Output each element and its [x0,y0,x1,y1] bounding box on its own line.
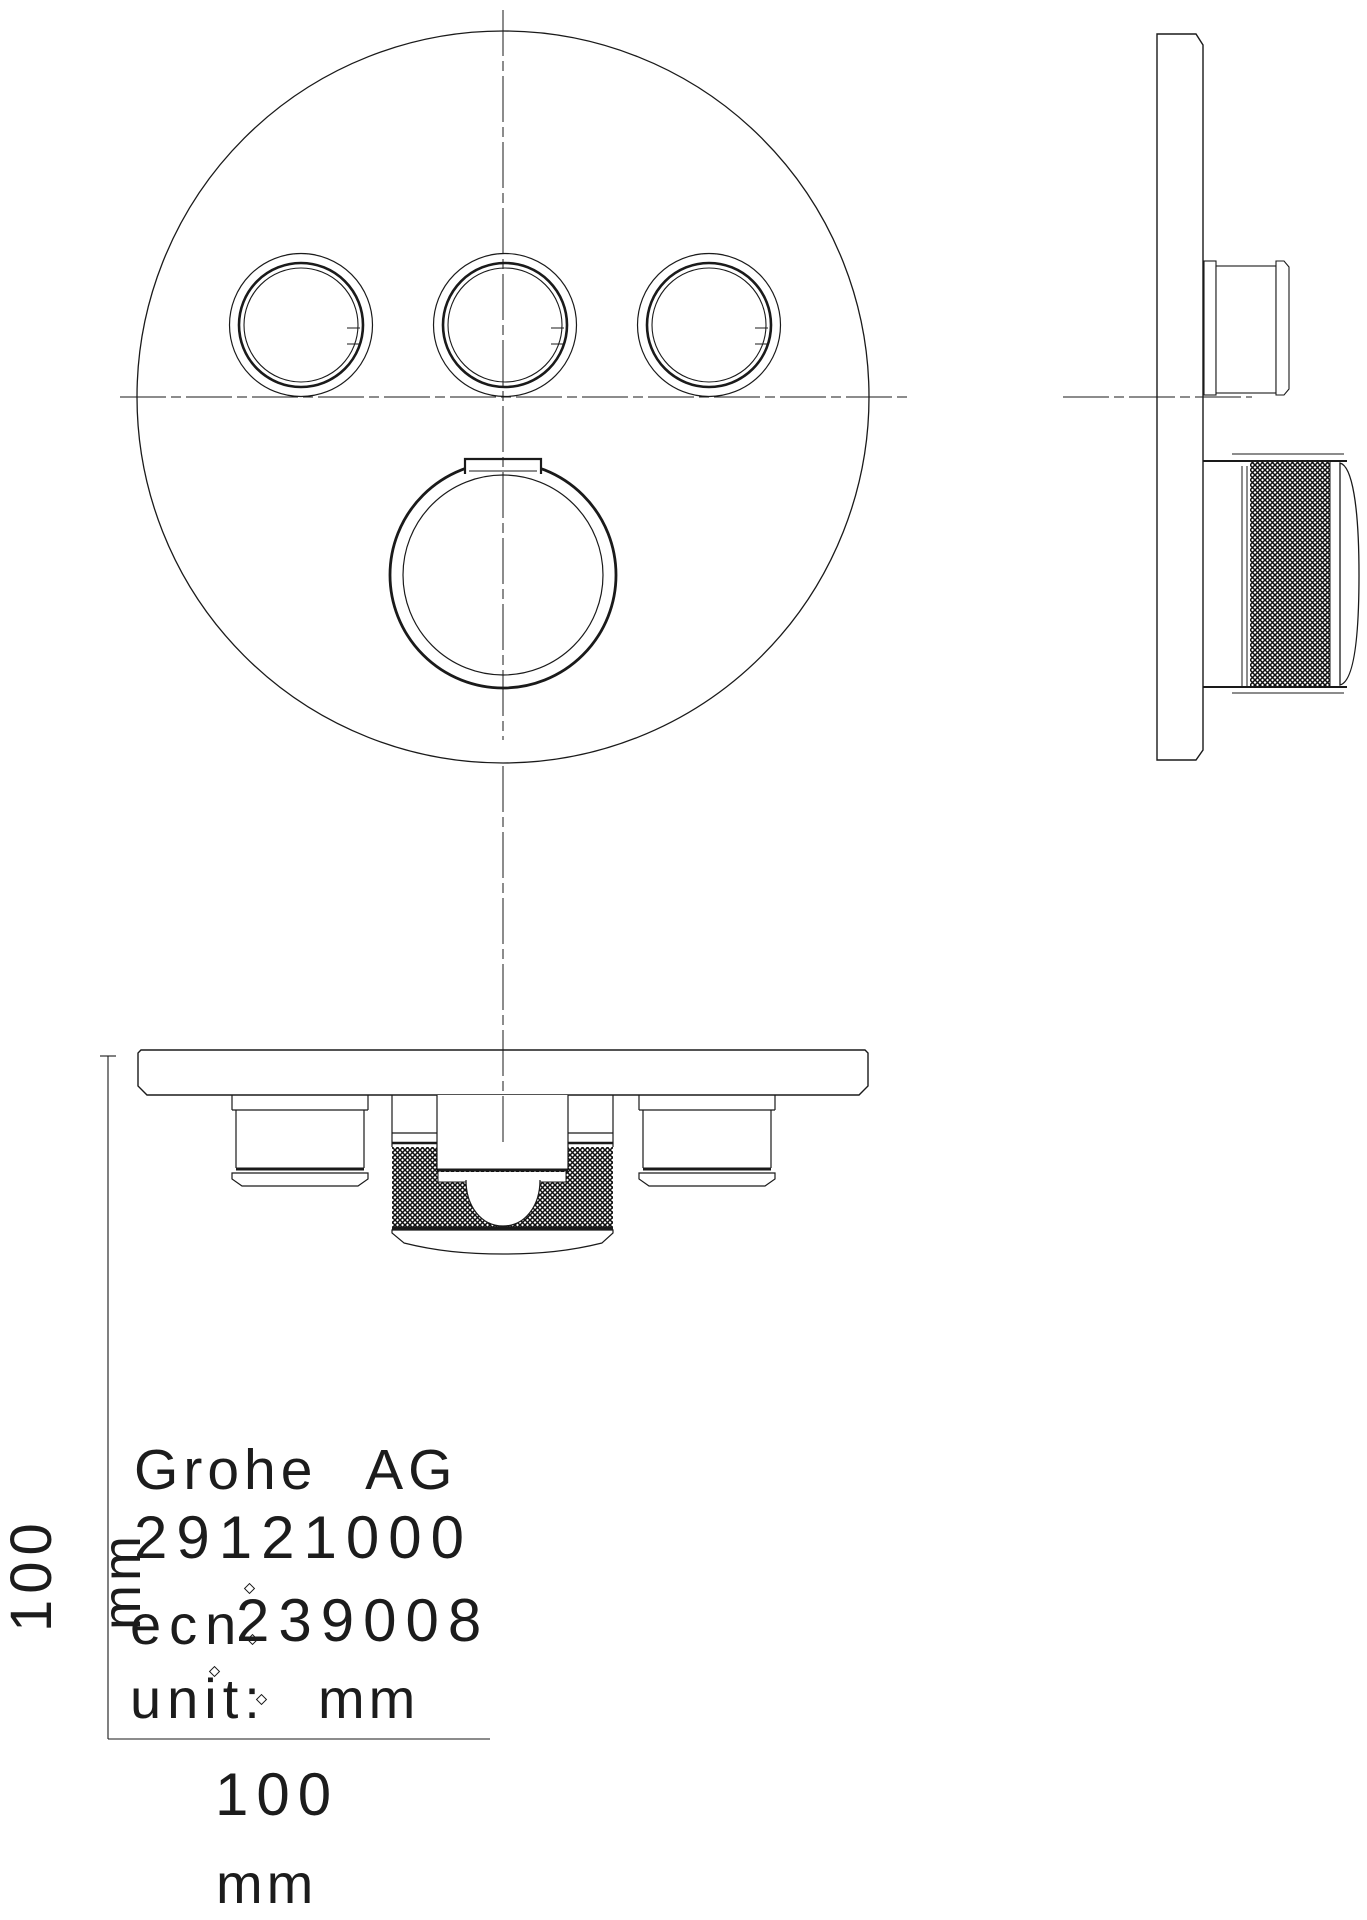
front-button-left [230,254,373,397]
side-knob [1203,454,1359,693]
product-number-text: 29121000 [134,1506,473,1569]
dim-vertical-unit-text: mm [94,1532,151,1630]
front-button-center [434,254,577,397]
unit-value-text: mm [318,1670,419,1729]
ecn-number-text: 239008 [236,1589,490,1652]
side-view [1063,34,1359,760]
side-knob-cap [1340,463,1359,685]
bottom-button-left-cap [232,1173,368,1186]
side-button-cap [1276,261,1289,395]
dim-horizontal-value-text: 100 [215,1763,339,1826]
dim-vertical-value-text: 100 [2,1517,63,1632]
bottom-view [138,766,868,1254]
side-button [1204,261,1289,395]
dim-horizontal-unit-text: mm [216,1855,317,1914]
unit-label-text: unit: [130,1670,266,1729]
front-view [120,10,907,763]
bottom-button-right-cap [639,1173,775,1186]
front-button-right [638,254,781,397]
bottom-knob-cap [392,1230,613,1254]
side-knob-gap-lines [1330,461,1340,687]
side-knob-neck-lines [1242,466,1247,686]
side-knurl [1250,461,1330,687]
manufacturer-text: Grohe AG [134,1441,457,1501]
bottom-button-right [639,1095,775,1186]
drawing-sheet: Grohe AG 29121000 ecn 239008 unit: mm 10… [0,0,1367,1920]
bottom-button-left [232,1095,368,1186]
